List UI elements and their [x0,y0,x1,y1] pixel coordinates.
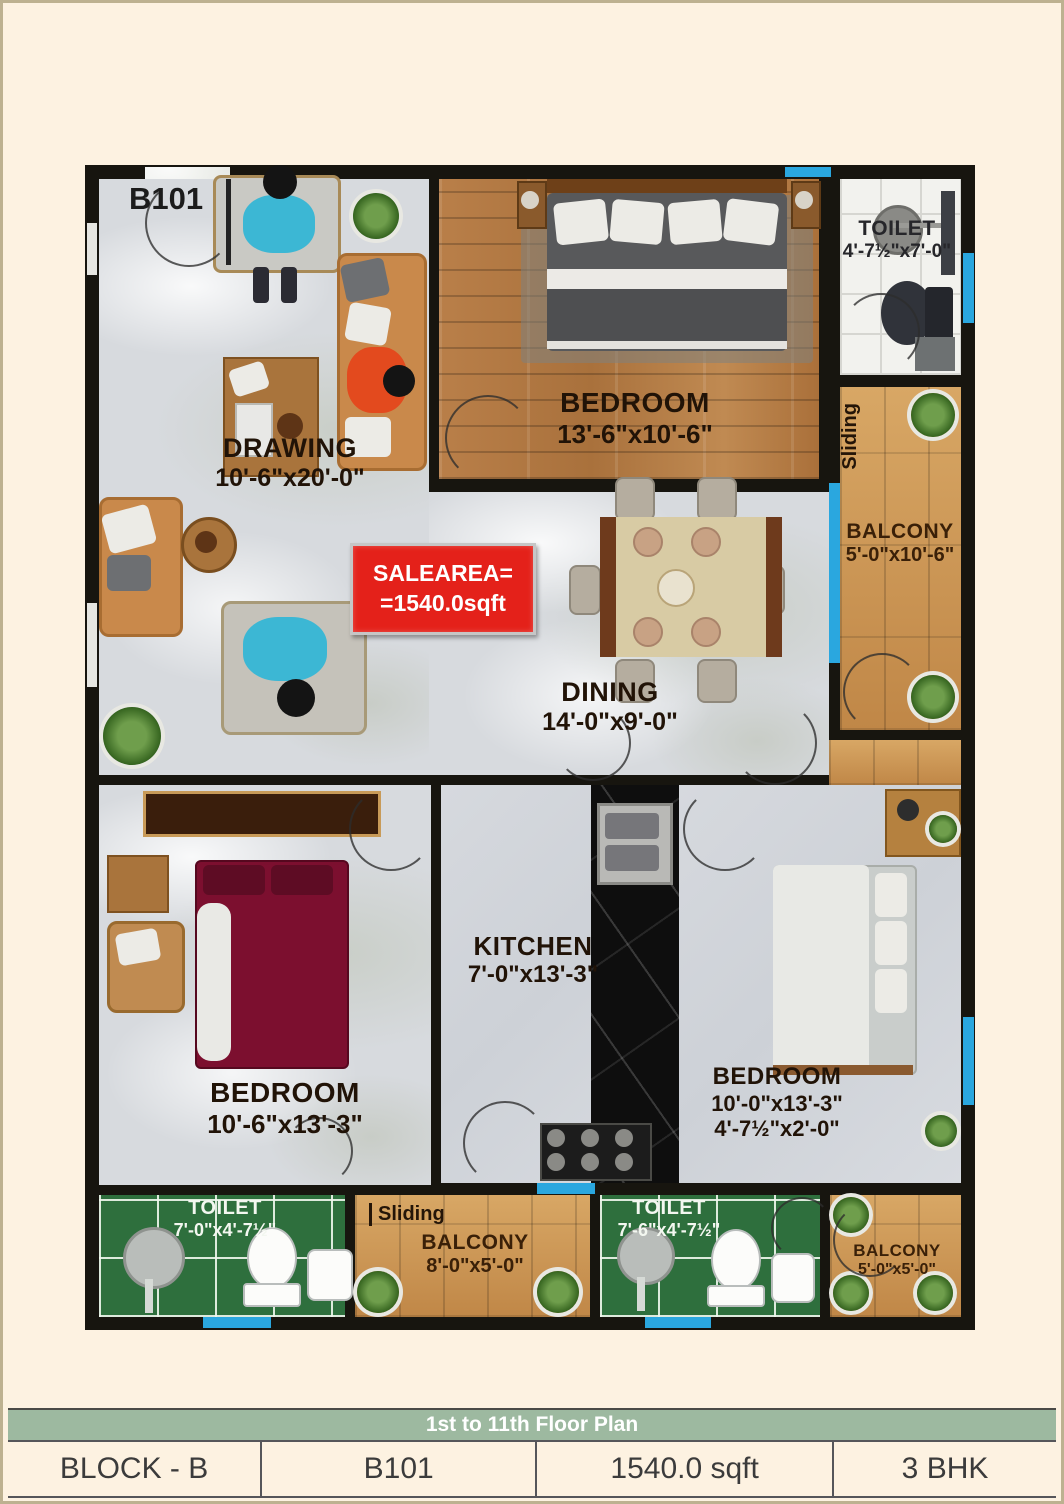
floor-plan-title-bar: 1st to 11th Floor Plan [8,1408,1056,1440]
balcony-right-name: BALCONY [846,520,955,544]
bedroom-right-label: BEDROOM 10'-0"x13'-3" 4'-7½"x2'-0" [711,1063,843,1142]
plant [537,1271,579,1313]
sink-bowl [605,813,659,839]
pillow-maroon [271,865,333,895]
shower-stand [145,1279,153,1313]
toilet-top-label: TOILET 4'-7½"x7'-0" [843,217,951,263]
dining-label: DINING 14'-0"x9'-0" [542,677,678,737]
area-cell: 1540.0 sqft [537,1442,834,1496]
bedroom-top-label: BEDROOM 13'-6"x10'-6" [557,387,713,450]
balcony-bottom-right-name: BALCONY [853,1241,941,1261]
block-cell: BLOCK - B [8,1442,262,1496]
unit-cell: B101 [262,1442,537,1496]
bed-headboard [547,179,787,193]
sale-area-line2: =1540.0sqft [353,589,533,619]
pillow [875,921,907,965]
drawing-room-name: DRAWING [215,433,365,464]
floor-plan-page: { "plan": { "unit_label": "B101", "sale_… [0,0,1064,1504]
balcony-bottom-label: BALCONY 8'-0"x5'-0" [421,1231,528,1279]
sliding-label-bottom: Sliding [369,1203,445,1226]
wash-basin [771,1253,815,1303]
person-head [277,679,315,717]
plant [833,1275,869,1311]
balcony-right-dims: 5'-0"x10'-6" [846,544,955,567]
bedroom-right-dims: 10'-0"x13'-3" [711,1091,843,1117]
pillow [875,873,907,917]
lamp [795,191,813,209]
pillow [553,198,609,245]
dining-door-arc-right [733,701,817,785]
drawing-room-label: DRAWING 10'-6"x20'-0" [215,433,365,493]
kitchen-name: KITCHEN [468,931,598,961]
toilet-bottom-left-name: TOILET [174,1197,277,1220]
floor-plan: B101 DRAWING 10'-6"x20'-0" BEDROOM 13'-6… [85,165,975,1330]
toilet-bottom-left-dims: 7'-0"x4'-7½" [174,1220,277,1241]
burner [615,1153,633,1171]
sale-area-line1: SALEAREA= [353,559,533,589]
balcony-right-label: BALCONY 5'-0"x10'-6" [846,520,955,568]
person-sitting-teal [243,195,315,253]
kitchen-door-arc [463,1101,547,1185]
plant [925,1115,957,1147]
toilet-bottom-mid-name: TOILET [618,1197,721,1220]
pillow [667,199,722,245]
dining-name: DINING [542,677,678,708]
bowl [195,531,217,553]
bedroom-top-name: BEDROOM [557,387,713,419]
cushion [107,555,151,591]
bedroom-left-label: BEDROOM 10'-6"x13'-3" [207,1077,363,1140]
floor-plan-title: 1st to 11th Floor Plan [426,1413,638,1437]
bedroom-top-dims: 13'-6"x10'-6" [557,419,713,449]
blanket [547,289,787,343]
burner [581,1153,599,1171]
bath-mat [915,337,955,371]
toilet-tank-dark [925,287,953,341]
window-kitchen [537,1183,595,1194]
balcony-bottom-dims: 8'-0"x5'-0" [421,1255,528,1278]
kitchen-dims: 7'-0"x13'-3" [468,961,598,989]
burner [615,1129,633,1147]
dining-chair [697,477,737,521]
unit-number-label: B101 [129,181,203,217]
side-table [107,855,169,913]
kitchen-label: KITCHEN 7'-0"x13'-3" [468,931,598,989]
bed-sheet-fold [547,269,787,289]
bed-sheet [197,903,231,1061]
sale-area-box: SALEAREA= =1540.0sqft [350,543,536,635]
pillow [875,969,907,1013]
bedroom-left-dims: 10'-6"x13'-3" [207,1109,363,1139]
plate [633,617,663,647]
window-bedroom-right [963,1017,974,1105]
plant [929,815,957,843]
dining-dims: 14'-0"x9'-0" [542,708,678,737]
burner [547,1153,565,1171]
toilet-bottom-mid-dims: 7'-6"x4'-7½" [618,1220,721,1241]
sink-bowl [605,845,659,871]
person-sitting-teal [243,617,327,681]
window-toilet-bottom-left [203,1317,271,1328]
wash-basin [307,1249,353,1301]
person-head [263,165,297,199]
toilet-top-name: TOILET [843,217,951,241]
bedroom-right-name: BEDROOM [711,1063,843,1091]
pillow-maroon [203,865,265,895]
plant [353,193,399,239]
desk-chair [897,799,919,821]
bedroom-left-name: BEDROOM [207,1077,363,1109]
balcony-bottom-right-dims: 5'-0"x5'-0" [853,1261,941,1280]
window-drawing-lower [87,603,97,687]
dining-chair [569,565,601,615]
burner [581,1129,599,1147]
toilet-bottom-mid-label: TOILET 7'-6"x4'-7½" [618,1197,721,1241]
plate [691,617,721,647]
toilet-tank [243,1283,301,1307]
bedroom-top-door-arc [445,395,531,481]
window-toilet-top [963,253,974,323]
bed-foot-runner [547,341,787,349]
plant [917,1275,953,1311]
summary-table: BLOCK - B B101 1540.0 sqft 3 BHK [8,1440,1056,1498]
balcony-right-door-arc [843,653,921,731]
window-bedroom-top [785,167,831,177]
bedroom-left-door-arc [349,787,433,871]
toilet-top-dims: 4'-7½"x7'-0" [843,241,951,263]
plate [691,527,721,557]
person-head [383,365,415,397]
pillow [609,199,664,245]
plant [911,393,955,437]
toilet-top-door-arc [842,293,920,371]
lamp [521,191,539,209]
sliding-window-balcony-right [829,483,840,663]
bhk-cell: 3 BHK [834,1442,1056,1496]
person-leg [281,267,297,303]
dining-chair [615,477,655,521]
bed-sheet [773,865,869,1071]
person-leg [253,267,269,303]
window-toilet-bottom-mid [645,1317,711,1328]
toilet-bottom-left-label: TOILET 7'-0"x4'-7½" [174,1197,277,1241]
toilet-tank [707,1285,765,1307]
bedroom-right-dims2: 4'-7½"x2'-0" [711,1116,843,1142]
pillow [723,198,780,246]
balcony-bottom-right-label: BALCONY 5'-0"x5'-0" [853,1241,941,1279]
shower-stand [637,1277,645,1311]
dining-chair [697,659,737,703]
cushion [344,302,392,347]
burner [547,1129,565,1147]
balcony-bottom-name: BALCONY [421,1231,528,1255]
drawing-room-dims: 10'-6"x20'-0" [215,464,365,493]
bedroom-right-door-arc [683,787,767,871]
toilet-bottom-mid-door-arc [771,1197,833,1259]
window-drawing-upper [87,223,97,275]
sliding-label-right: Sliding [839,403,862,470]
console-table [143,791,381,837]
plant [103,707,161,765]
plant [357,1271,399,1313]
center-dish [657,569,695,607]
passage-right-floor [829,740,961,785]
plate [633,527,663,557]
